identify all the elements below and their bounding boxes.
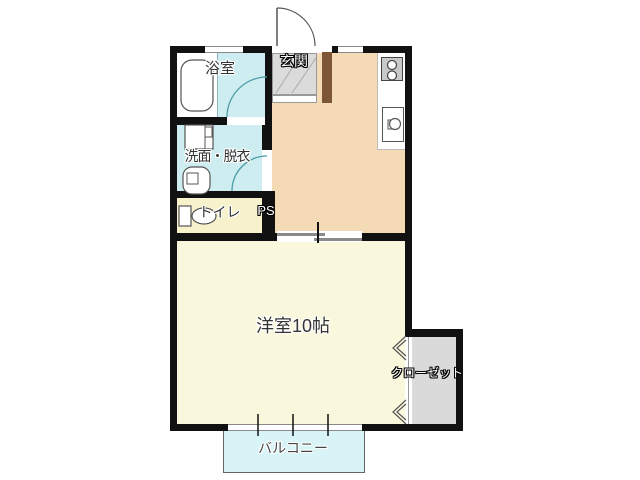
closet-door-track <box>405 337 412 424</box>
closet-label: クローゼット <box>390 367 464 380</box>
wall-bottom-1 <box>170 424 228 431</box>
washroom-label: 洗面・脱衣 <box>174 149 260 164</box>
entrance-label: 玄関 <box>270 54 318 69</box>
bathroom-label: 浴室 <box>185 61 255 78</box>
wall-top-4 <box>363 46 405 53</box>
pipe-space-label: PS <box>252 204 280 218</box>
main-room-label: 洋室10帖 <box>233 317 353 337</box>
sliding-door-panel-right <box>314 238 362 241</box>
sliding-door <box>277 231 362 242</box>
wall-left <box>170 46 177 431</box>
sliding-door-panel-left <box>277 233 325 236</box>
balcony-label: バルコニー <box>253 441 333 456</box>
closet-wall-top <box>405 329 463 337</box>
wall-right <box>405 46 412 337</box>
floor-plan: 浴室 玄関 洗面・脱衣 トイレ PS 洋室10帖 クローゼット バルコニー <box>0 0 640 480</box>
bathroom-window <box>205 46 243 53</box>
stove <box>381 57 403 81</box>
wall-mainroom-top-right <box>362 233 405 241</box>
entrance-step <box>272 95 317 103</box>
wall-bottom-2 <box>362 424 463 431</box>
entrance-door-arc <box>277 8 315 46</box>
wall-bathroom-bottom <box>177 117 227 125</box>
entrance-wood-strip <box>322 52 332 103</box>
kitchen-sink <box>382 107 404 142</box>
closet-floor <box>412 337 456 424</box>
wall-washroom-bottom <box>177 191 262 198</box>
toilet-label: トイレ <box>192 205 247 220</box>
wall-washroom-right <box>262 125 272 150</box>
kitchen-window <box>338 46 363 53</box>
wall-mainroom-top-left <box>177 233 277 241</box>
balcony-window <box>228 424 362 431</box>
